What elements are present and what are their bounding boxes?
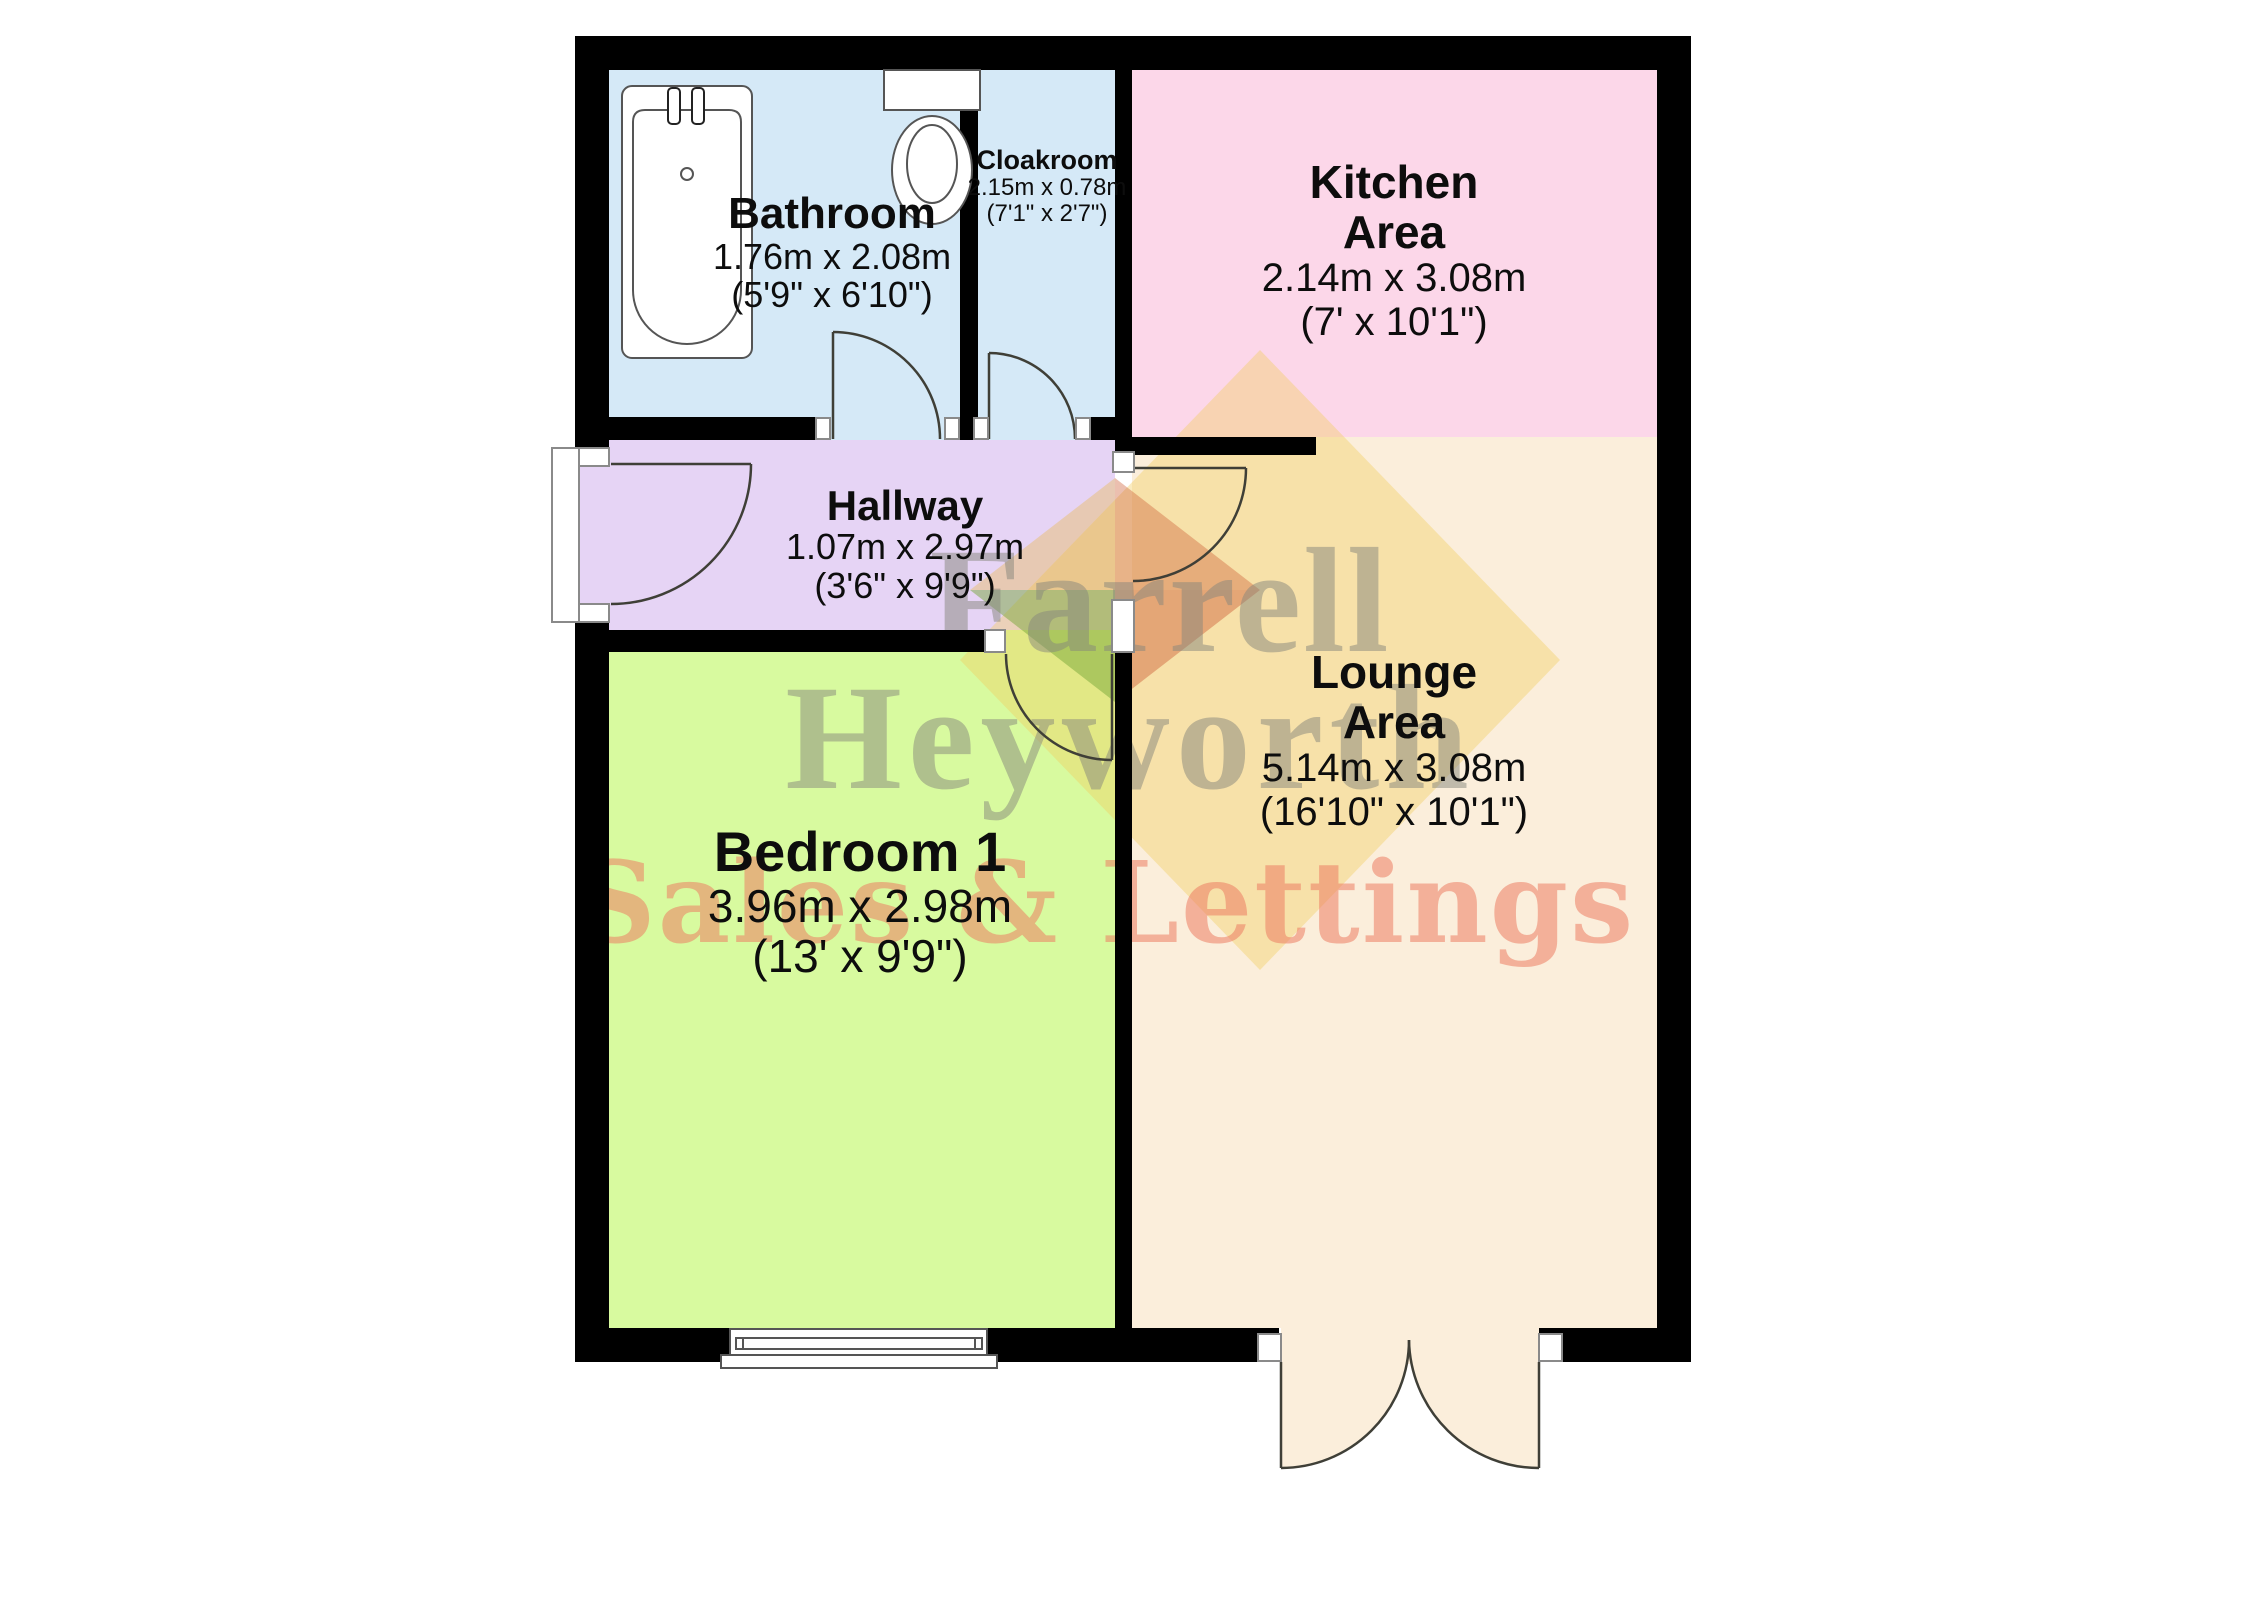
entrance-jamb-bottom [579, 604, 609, 622]
entrance-jamb-top [579, 448, 609, 466]
bathroom-door-jamb-left [816, 418, 830, 439]
hallway-name: Hallway [786, 483, 1024, 528]
bedroom-dim-imperial: (13' x 9'9") [708, 932, 1012, 982]
lounge-door-icon [1133, 468, 1246, 581]
kitchen-dim-imperial: (7' x 10'1") [1262, 301, 1527, 344]
hallway-dim-metric: 1.07m x 2.97m [786, 528, 1024, 567]
french-door-jamb-right [1539, 1334, 1562, 1361]
kitchen-name-line1: Kitchen [1262, 158, 1527, 208]
bathroom-name: Bathroom [713, 190, 951, 238]
bathroom-dim-metric: 1.76m x 2.08m [713, 238, 951, 277]
french-door-jamb-left [1258, 1334, 1281, 1361]
french-doors-icon [1281, 1340, 1539, 1468]
lounge-name-line2: Area [1260, 698, 1528, 748]
cloakroom-label: Cloakroom 2.15m x 0.78m (7'1" x 2'7") [968, 146, 1127, 227]
cloakroom-door-icon [989, 353, 1075, 439]
wall-tee-jamb [1112, 600, 1134, 652]
bathroom-dim-imperial: (5'9" x 6'10") [713, 276, 951, 315]
fixtures-layer [0, 0, 2256, 1620]
lounge-dim-metric: 5.14m x 3.08m [1260, 747, 1528, 790]
bedroom-door-jamb-left [985, 630, 1005, 652]
kitchen-name-line2: Area [1262, 208, 1527, 258]
lounge-name-line1: Lounge [1260, 648, 1528, 698]
floorplan-canvas: Farrell Heyworth Sales & Lettings [0, 0, 2256, 1620]
cloakroom-name: Cloakroom [968, 146, 1127, 175]
bathroom-door-icon [833, 332, 940, 439]
bedroom-label: Bedroom 1 3.96m x 2.98m (13' x 9'9") [708, 822, 1012, 982]
lounge-dim-imperial: (16'10" x 10'1") [1260, 791, 1528, 834]
cloakroom-door-jamb-right [1076, 418, 1090, 439]
hallway-dim-imperial: (3'6" x 9'9") [786, 567, 1024, 606]
lounge-door-jamb-top [1113, 452, 1134, 472]
cloakroom-dim-metric: 2.15m x 0.78m [968, 175, 1127, 201]
bathroom-label: Bathroom 1.76m x 2.08m (5'9" x 6'10") [713, 190, 951, 315]
kitchen-label: Kitchen Area 2.14m x 3.08m (7' x 10'1") [1262, 158, 1527, 344]
bedroom-door-icon [1006, 654, 1112, 760]
bedroom-dim-metric: 3.96m x 2.98m [708, 882, 1012, 932]
hallway-label: Hallway 1.07m x 2.97m (3'6" x 9'9") [786, 483, 1024, 606]
kitchen-dim-metric: 2.14m x 3.08m [1262, 257, 1527, 300]
bedroom-name: Bedroom 1 [708, 822, 1012, 882]
bathroom-door-jamb-right [945, 418, 959, 439]
cloakroom-dim-imperial: (7'1" x 2'7") [968, 201, 1127, 227]
entrance-door-icon [552, 448, 751, 622]
lounge-label: Lounge Area 5.14m x 3.08m (16'10" x 10'1… [1260, 648, 1528, 834]
bedroom-window-icon [721, 1329, 997, 1368]
cloakroom-door-jamb-left [974, 418, 988, 439]
